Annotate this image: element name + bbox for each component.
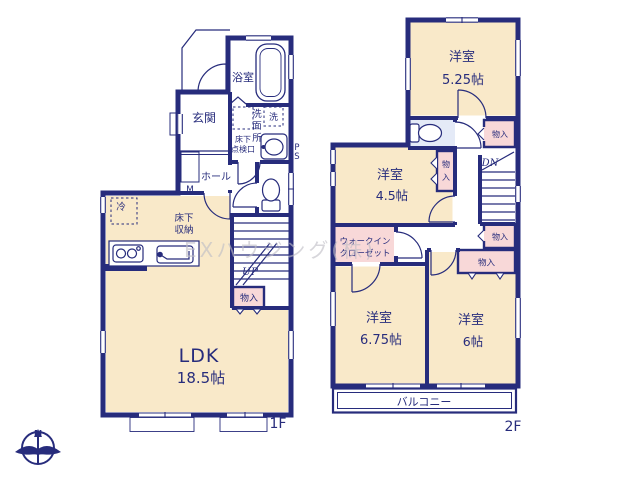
floor-plan-1f: 玄関 ホール 浴室 洗 面 所 洗 床下 点検口 P S M 冷 床下 収納 U… (100, 30, 300, 432)
label-room6: 洋室 (458, 312, 484, 328)
label-hatch-2: 点検口 (231, 144, 255, 154)
label-up: UP (242, 266, 259, 278)
label-closet-b-1: 物 (442, 159, 450, 169)
label-room525-size: 5.25帖 (442, 73, 484, 88)
company-watermark: EXハウジング(株) (184, 238, 376, 262)
label-closet-b-2: 入 (442, 173, 450, 182)
label-washroom-3: 所 (252, 133, 262, 144)
label-room675-size: 6.75帖 (360, 333, 402, 348)
label-ldk-size: 18.5帖 (177, 369, 225, 387)
floor-label-1f: 1F (270, 416, 287, 432)
label-closet-d: 物入 (478, 258, 496, 269)
label-washroom-1: 洗 (252, 108, 262, 120)
label-washer: 洗 (269, 111, 278, 123)
room-525-fill (411, 23, 516, 116)
underfloor-hatch-box (233, 107, 253, 129)
label-ps-2: S (294, 152, 299, 162)
label-closet-c: 物入 (492, 232, 508, 242)
label-entrance: 玄関 (192, 110, 216, 125)
label-meter: M (186, 185, 194, 195)
bathtub (256, 44, 285, 101)
closet-b-fill (437, 151, 455, 191)
label-bathroom: 浴室 (232, 70, 254, 84)
label-room45: 洋室 (377, 167, 403, 183)
label-fridge: 冷 (116, 201, 126, 213)
label-room525: 洋室 (449, 49, 475, 65)
label-hall: ホール (201, 171, 231, 183)
label-balcony: バルコニー (397, 396, 452, 409)
label-room6-size: 6帖 (463, 334, 483, 349)
floor-plan-2f: 洋室 5.25帖 洋室 4.5帖 洋室 6.75帖 洋室 6帖 ウォークイン ク… (330, 17, 521, 435)
north-label: N (34, 429, 42, 440)
label-closet-a: 物入 (492, 129, 508, 139)
north-compass-icon: N (15, 429, 61, 464)
label-room675: 洋室 (366, 310, 392, 326)
toilet-1f (262, 179, 280, 211)
label-ldk: LDK (179, 345, 220, 367)
label-ufstorage-2: 収納 (174, 224, 193, 236)
floor-plan-page: 玄関 ホール 浴室 洗 面 所 洗 床下 点検口 P S M 冷 床下 収納 U… (0, 0, 640, 480)
label-hatch-1: 床下 (235, 134, 251, 144)
washbasin (261, 134, 287, 159)
label-closet-1f: 物入 (240, 292, 258, 304)
label-dn: DN (481, 158, 500, 169)
toilet-2f (410, 124, 442, 142)
shoe-cabinet (181, 152, 199, 182)
label-ufstorage-1: 床下 (174, 212, 193, 224)
label-washroom-2: 面 (252, 121, 262, 132)
floor-label-2f: 2F (505, 419, 522, 435)
label-room45-size: 4.5帖 (376, 188, 408, 203)
